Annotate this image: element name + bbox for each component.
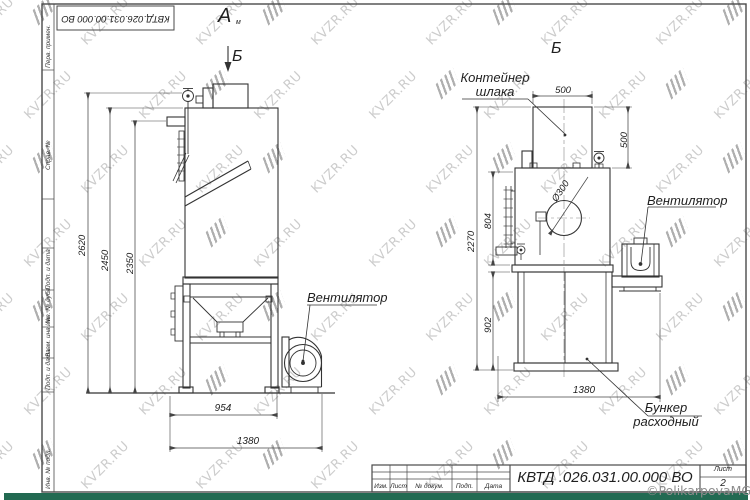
fan-callout-right: Вентилятор <box>647 193 728 208</box>
sheet-label: Лист <box>700 466 746 473</box>
dim-1380-left: 1380 <box>231 436 265 447</box>
dim-500-top: 500 <box>549 85 577 96</box>
valve-icon <box>594 152 604 169</box>
bunker-callout-2: расходный <box>626 414 706 429</box>
view-b-title: Б <box>551 40 561 58</box>
left-view-linework <box>88 84 335 393</box>
dim-500-right: 500 <box>619 132 630 148</box>
section-b-marker-label: Б <box>232 48 242 66</box>
sidebar-item-sprav-n: Справ. № <box>45 140 52 170</box>
dim-2270: 2270 <box>466 231 477 252</box>
dim-2450: 2450 <box>100 250 111 271</box>
slag-container-callout-1: Контейнер <box>456 70 534 85</box>
drawing-sheet: KVZR.RUKVZR.RUKVZR.RUKVZR.RUKVZR.RUKVZR.… <box>0 0 750 500</box>
bottom-bar <box>4 493 748 500</box>
sidebar-item-podp-data-2: Подп. и дата <box>45 349 52 390</box>
slag-container <box>533 107 592 168</box>
sidebar-item-podp-data-1: Подп. и дата <box>45 249 52 290</box>
fan-callout-left: Вентилятор <box>307 290 388 305</box>
top-stamp: КВТД.026.031.00.000 ВО <box>57 6 174 30</box>
bunker-callout-1: Бункер <box>628 400 704 415</box>
right-view-linework <box>496 99 662 380</box>
tb-col-podp: Подп. <box>452 483 477 490</box>
dim-902: 902 <box>483 317 494 333</box>
dim-1380-right: 1380 <box>567 385 601 396</box>
sidebar-item-inv-podl: Инв. № подл. <box>45 449 52 489</box>
tb-col-data: Дата <box>477 483 510 490</box>
dim-2350: 2350 <box>125 253 136 274</box>
dim-804: 804 <box>483 213 494 229</box>
tb-col-izm: Изм. <box>372 483 390 490</box>
copyright-watermark: ©PolikarpovaMG2021 <box>646 483 750 498</box>
section-arrow <box>225 46 232 72</box>
slag-container-callout-2: шлака <box>456 84 534 99</box>
dim-954: 954 <box>209 403 237 414</box>
view-a-sub: м <box>236 19 241 26</box>
dim-2620: 2620 <box>77 235 88 256</box>
fan-right-view <box>619 238 661 291</box>
fan-left-view <box>282 337 322 393</box>
sidebar-item-perv-primen: Перв. примен. <box>45 25 52 68</box>
tb-col-ndokum: № докум. <box>407 483 452 490</box>
flue-box <box>213 84 248 108</box>
furnace-body <box>185 108 278 278</box>
tb-col-list: Лист <box>390 483 407 490</box>
view-a-label: А <box>218 5 231 28</box>
